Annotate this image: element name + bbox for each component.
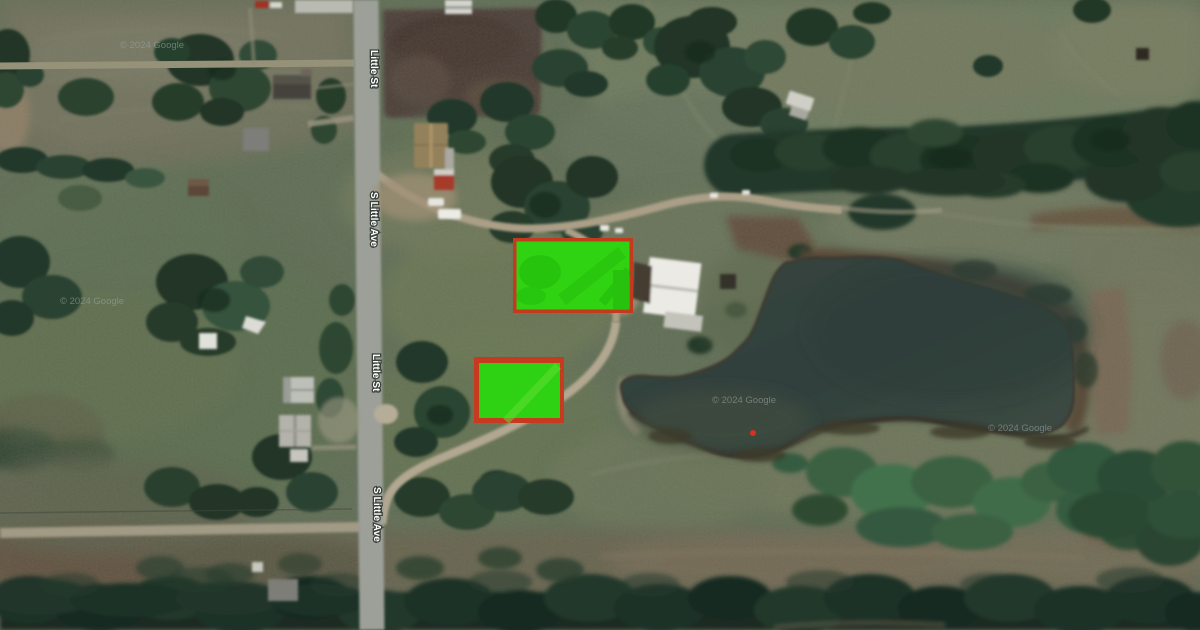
svg-text:S Little Ave: S Little Ave: [368, 192, 379, 247]
svg-text:Little St: Little St: [370, 354, 381, 392]
svg-text:© 2024 Google: © 2024 Google: [712, 395, 776, 406]
svg-text:Little St: Little St: [368, 50, 379, 88]
svg-text:S Little Ave: S Little Ave: [371, 487, 382, 542]
svg-text:© 2024 Google: © 2024 Google: [120, 40, 184, 51]
svg-text:© 2024 Google: © 2024 Google: [988, 423, 1052, 434]
svg-text:© 2024 Google: © 2024 Google: [60, 296, 124, 307]
